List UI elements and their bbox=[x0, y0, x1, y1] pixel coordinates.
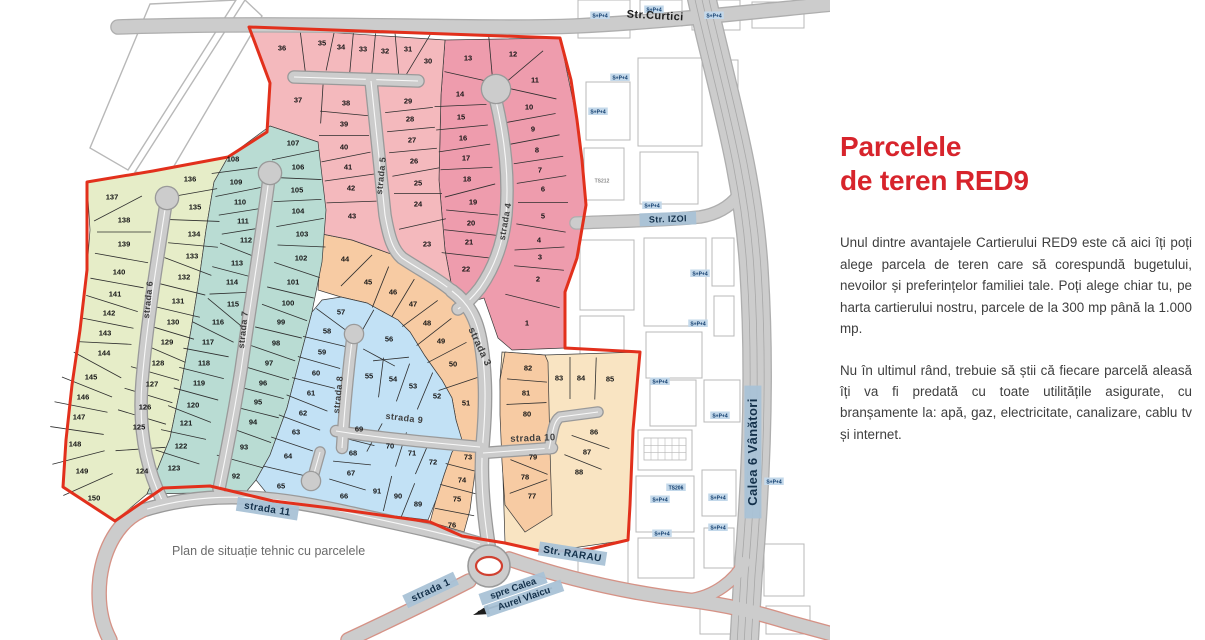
building-outline bbox=[764, 544, 804, 596]
parcel-146: 146 bbox=[77, 393, 90, 402]
cul-de-sac bbox=[482, 75, 510, 103]
parcel-47: 47 bbox=[409, 300, 417, 309]
utilities-paragraph: Nu în ultimul rând, trebuie să știi că f… bbox=[840, 360, 1192, 446]
parcel-72: 72 bbox=[429, 458, 437, 467]
parcel-115: 115 bbox=[227, 300, 239, 309]
street-label-str-izoi: Str. IZOI bbox=[639, 211, 696, 226]
parcel-77: 77 bbox=[528, 492, 536, 501]
parcel-62: 62 bbox=[299, 409, 307, 418]
parcel-16: 16 bbox=[459, 134, 467, 143]
building-outline bbox=[646, 332, 702, 378]
parcel-131: 131 bbox=[172, 297, 185, 306]
parcel-101: 101 bbox=[287, 278, 300, 287]
parcel-90: 90 bbox=[394, 492, 402, 501]
building-outline bbox=[714, 296, 734, 336]
parcel-86: 86 bbox=[590, 428, 598, 437]
parcel-64: 64 bbox=[284, 452, 293, 461]
parcel-120: 120 bbox=[187, 401, 200, 410]
site-plan-svg: S+P+4S+P+4S+P+4S+P+4S+P+4S+P+4S+P+4S+P+4… bbox=[0, 0, 830, 640]
bg-label-s-p-4: S+P+4 bbox=[712, 414, 728, 420]
parcel-118: 118 bbox=[198, 359, 210, 368]
parcel-140: 140 bbox=[113, 268, 126, 277]
parcel-107: 107 bbox=[287, 139, 300, 148]
parcel-12: 12 bbox=[509, 50, 517, 59]
parcel-84: 84 bbox=[577, 374, 586, 383]
building-outline bbox=[702, 470, 736, 516]
parcel-61: 61 bbox=[307, 389, 315, 398]
parcel-38: 38 bbox=[342, 99, 350, 108]
parcel-30: 30 bbox=[424, 57, 432, 66]
building-outline bbox=[638, 538, 694, 578]
parcel-80: 80 bbox=[523, 410, 531, 419]
cul-de-sac bbox=[156, 187, 178, 209]
parcel-48: 48 bbox=[423, 319, 431, 328]
parcel-138: 138 bbox=[118, 216, 131, 225]
parcel-65: 65 bbox=[277, 482, 285, 491]
parcel-68: 68 bbox=[349, 449, 357, 458]
parcel-39: 39 bbox=[340, 120, 348, 129]
parcel-40: 40 bbox=[340, 143, 348, 152]
bg-label-s-p-4: S+P+4 bbox=[652, 380, 668, 386]
parcel-52: 52 bbox=[433, 392, 441, 401]
parcel-110: 110 bbox=[234, 198, 246, 207]
bg-label-s-p-4: S+P+4 bbox=[710, 496, 726, 502]
strada-11-ext bbox=[99, 511, 141, 640]
building-outline bbox=[650, 380, 696, 426]
building-outline bbox=[580, 240, 634, 310]
parcel-22: 22 bbox=[462, 265, 470, 274]
parcel-88: 88 bbox=[575, 468, 583, 477]
parcel-45: 45 bbox=[364, 278, 372, 287]
parcel-42: 42 bbox=[347, 184, 355, 193]
title-line1: Parcelele bbox=[840, 131, 961, 162]
parcel-117: 117 bbox=[202, 338, 214, 347]
building-outline bbox=[640, 152, 698, 204]
parcel-20: 20 bbox=[467, 219, 475, 228]
parcel-29: 29 bbox=[404, 97, 412, 106]
parcel-36: 36 bbox=[278, 44, 286, 53]
svg-text:Str. IZOI: Str. IZOI bbox=[649, 213, 687, 224]
parcel-89: 89 bbox=[414, 500, 422, 509]
parcel-23: 23 bbox=[423, 240, 431, 249]
parcel-50: 50 bbox=[449, 360, 457, 369]
parcel-11: 11 bbox=[531, 76, 539, 85]
parcel-93: 93 bbox=[240, 443, 248, 452]
parcel-7: 7 bbox=[538, 166, 542, 175]
parcel-108: 108 bbox=[227, 155, 240, 164]
parcel-13: 13 bbox=[464, 54, 472, 63]
parcel-8: 8 bbox=[535, 146, 539, 155]
parcel-67: 67 bbox=[347, 469, 355, 478]
parcel-6: 6 bbox=[541, 185, 545, 194]
svg-text:strada 10: strada 10 bbox=[510, 432, 556, 445]
bg-label-s-p-4: S+P+4 bbox=[592, 14, 608, 20]
parcel-76: 76 bbox=[448, 521, 456, 530]
bg-label-ts206: TS206 bbox=[669, 486, 684, 492]
parcel-78: 78 bbox=[521, 473, 529, 482]
parcel-74: 74 bbox=[458, 476, 467, 485]
parcel-95: 95 bbox=[254, 398, 262, 407]
parcel-143: 143 bbox=[99, 329, 112, 338]
parcel-28: 28 bbox=[406, 115, 414, 124]
parcel-58: 58 bbox=[323, 327, 331, 336]
parcel-19: 19 bbox=[469, 198, 477, 207]
parcel-113: 113 bbox=[231, 259, 243, 268]
parcel-51: 51 bbox=[462, 399, 470, 408]
parcel-149: 149 bbox=[76, 467, 89, 476]
intro-paragraph: Unul dintre avantajele Cartierului RED9 … bbox=[840, 232, 1192, 339]
parcel-136: 136 bbox=[184, 175, 197, 184]
parcel-10: 10 bbox=[525, 103, 533, 112]
parcel-144: 144 bbox=[98, 349, 111, 358]
parcel-123: 123 bbox=[168, 464, 181, 473]
strada-1-road bbox=[348, 581, 469, 640]
parcel-75: 75 bbox=[453, 495, 461, 504]
cul-de-sac bbox=[345, 325, 363, 343]
bg-label-s-p-4: S+P+4 bbox=[654, 532, 670, 538]
parcel-24: 24 bbox=[414, 200, 423, 209]
building-outline bbox=[584, 148, 624, 200]
parcel-33: 33 bbox=[359, 45, 367, 54]
parcel-147: 147 bbox=[73, 413, 86, 422]
cul-de-sac bbox=[302, 472, 320, 490]
parcel-3: 3 bbox=[538, 253, 542, 262]
parcel-14: 14 bbox=[456, 90, 465, 99]
parcel-31: 31 bbox=[404, 45, 412, 54]
parcel-135: 135 bbox=[189, 203, 202, 212]
street-label-strada-10: strada 10 bbox=[510, 432, 556, 445]
cul-de-sac bbox=[259, 162, 281, 184]
parcel-128: 128 bbox=[152, 359, 165, 368]
parcel-46: 46 bbox=[389, 288, 397, 297]
parcel-66: 66 bbox=[340, 492, 348, 501]
parcel-122: 122 bbox=[175, 442, 188, 451]
parcel-35: 35 bbox=[318, 39, 326, 48]
parcel-114: 114 bbox=[226, 278, 239, 287]
parcel-41: 41 bbox=[344, 163, 352, 172]
parcel-44: 44 bbox=[341, 255, 350, 264]
parcel-125: 125 bbox=[133, 423, 146, 432]
parcel-82: 82 bbox=[524, 364, 532, 373]
parcel-150: 150 bbox=[88, 494, 101, 503]
parcel-81: 81 bbox=[522, 389, 530, 398]
bg-label-s-p-4: S+P+4 bbox=[612, 76, 628, 82]
parcel-141: 141 bbox=[109, 290, 122, 299]
map-caption: Plan de situație tehnic cu parcelele bbox=[172, 544, 365, 558]
parcel-73: 73 bbox=[464, 453, 472, 462]
parcel-94: 94 bbox=[249, 418, 258, 427]
site-plan-map: S+P+4S+P+4S+P+4S+P+4S+P+4S+P+4S+P+4S+P+4… bbox=[0, 0, 830, 640]
parcel-119: 119 bbox=[193, 379, 205, 388]
parcel-25: 25 bbox=[414, 179, 422, 188]
parcel-69: 69 bbox=[355, 425, 363, 434]
svg-text:Calea 6 Vânători: Calea 6 Vânători bbox=[745, 398, 760, 506]
parcel-109: 109 bbox=[230, 178, 243, 187]
parcel-97: 97 bbox=[265, 359, 273, 368]
parcel-148: 148 bbox=[69, 440, 82, 449]
bg-label-s-p-4: S+P+4 bbox=[590, 110, 606, 116]
parcel-34: 34 bbox=[337, 43, 346, 52]
parcel-139: 139 bbox=[118, 240, 131, 249]
parcel-130: 130 bbox=[167, 318, 180, 327]
parcel-63: 63 bbox=[292, 428, 300, 437]
parcel-137: 137 bbox=[106, 193, 119, 202]
parcel-59: 59 bbox=[318, 348, 326, 357]
parcel-26: 26 bbox=[410, 157, 418, 166]
parcel-106: 106 bbox=[292, 163, 305, 172]
parcel-27: 27 bbox=[408, 136, 416, 145]
parcel-83: 83 bbox=[555, 374, 563, 383]
parcel-102: 102 bbox=[295, 254, 308, 263]
roundabout-island bbox=[476, 557, 502, 575]
parcel-98: 98 bbox=[272, 339, 280, 348]
parcel-129: 129 bbox=[161, 338, 174, 347]
parcel-104: 104 bbox=[292, 207, 305, 216]
bg-label-s-p-4: S+P+4 bbox=[766, 480, 782, 486]
parcel-37: 37 bbox=[294, 96, 302, 105]
parcel-55: 55 bbox=[365, 372, 373, 381]
bg-label-s-p-4: S+P+4 bbox=[710, 526, 726, 532]
parcel-111: 111 bbox=[237, 217, 249, 226]
bg-label-s-p-4: S+P+4 bbox=[692, 272, 708, 278]
bg-label-s-p-4: S+P+4 bbox=[690, 322, 706, 328]
parcel-116: 116 bbox=[212, 318, 224, 327]
parcel-70: 70 bbox=[386, 442, 394, 451]
parcel-91: 91 bbox=[373, 487, 381, 496]
building-outline bbox=[644, 238, 706, 326]
parcel-145: 145 bbox=[85, 373, 98, 382]
parcel-126: 126 bbox=[139, 403, 152, 412]
parcel-103: 103 bbox=[296, 230, 309, 239]
parcel-133: 133 bbox=[186, 252, 199, 261]
bg-label-s-p-4: S+P+4 bbox=[652, 498, 668, 504]
parcel-17: 17 bbox=[462, 154, 470, 163]
parcel-15: 15 bbox=[457, 113, 465, 122]
parcel-5: 5 bbox=[541, 212, 545, 221]
parcel-18: 18 bbox=[463, 175, 471, 184]
parcel-9: 9 bbox=[531, 125, 535, 134]
parcel-57: 57 bbox=[337, 308, 345, 317]
page-title: Parcelele de teren RED9 bbox=[840, 130, 1192, 198]
parcel-60: 60 bbox=[312, 369, 320, 378]
parcel-56: 56 bbox=[385, 335, 393, 344]
street-label-calea-6-v-n-tori: Calea 6 Vânători bbox=[744, 386, 761, 519]
parcel-87: 87 bbox=[583, 448, 591, 457]
parcel-79: 79 bbox=[529, 453, 537, 462]
parcel-43: 43 bbox=[348, 212, 356, 221]
parcel-49: 49 bbox=[437, 337, 445, 346]
bg-label-s-p-4: S+P+4 bbox=[706, 14, 722, 20]
bg-label-ts212: TS212 bbox=[595, 179, 610, 185]
parcel-21: 21 bbox=[465, 238, 473, 247]
parcel-100: 100 bbox=[282, 299, 295, 308]
parcel-71: 71 bbox=[408, 449, 416, 458]
building-outline bbox=[704, 528, 734, 568]
parcel-32: 32 bbox=[381, 47, 389, 56]
parcel-105: 105 bbox=[291, 186, 304, 195]
parcel-132: 132 bbox=[178, 273, 191, 282]
parcel-96: 96 bbox=[259, 379, 267, 388]
parcel-92: 92 bbox=[232, 472, 240, 481]
parcel-1: 1 bbox=[525, 319, 529, 328]
info-panel: Parcelele de teren RED9 Unul dintre avan… bbox=[840, 130, 1192, 445]
building-outline bbox=[638, 58, 702, 146]
parcel-142: 142 bbox=[103, 309, 116, 318]
parcel-85: 85 bbox=[606, 375, 614, 384]
title-line2: de teren RED9 bbox=[840, 165, 1029, 196]
building-outline bbox=[712, 238, 734, 286]
parcel-124: 124 bbox=[136, 467, 149, 476]
parcel-99: 99 bbox=[277, 318, 285, 327]
parcel-121: 121 bbox=[180, 419, 193, 428]
parcel-53: 53 bbox=[409, 382, 417, 391]
parcel-134: 134 bbox=[188, 230, 201, 239]
parcel-127: 127 bbox=[146, 380, 159, 389]
parcel-112: 112 bbox=[240, 236, 252, 245]
parcel-2: 2 bbox=[536, 275, 540, 284]
parcel-54: 54 bbox=[389, 375, 398, 384]
bg-label-s-p-4: S+P+4 bbox=[644, 204, 660, 210]
